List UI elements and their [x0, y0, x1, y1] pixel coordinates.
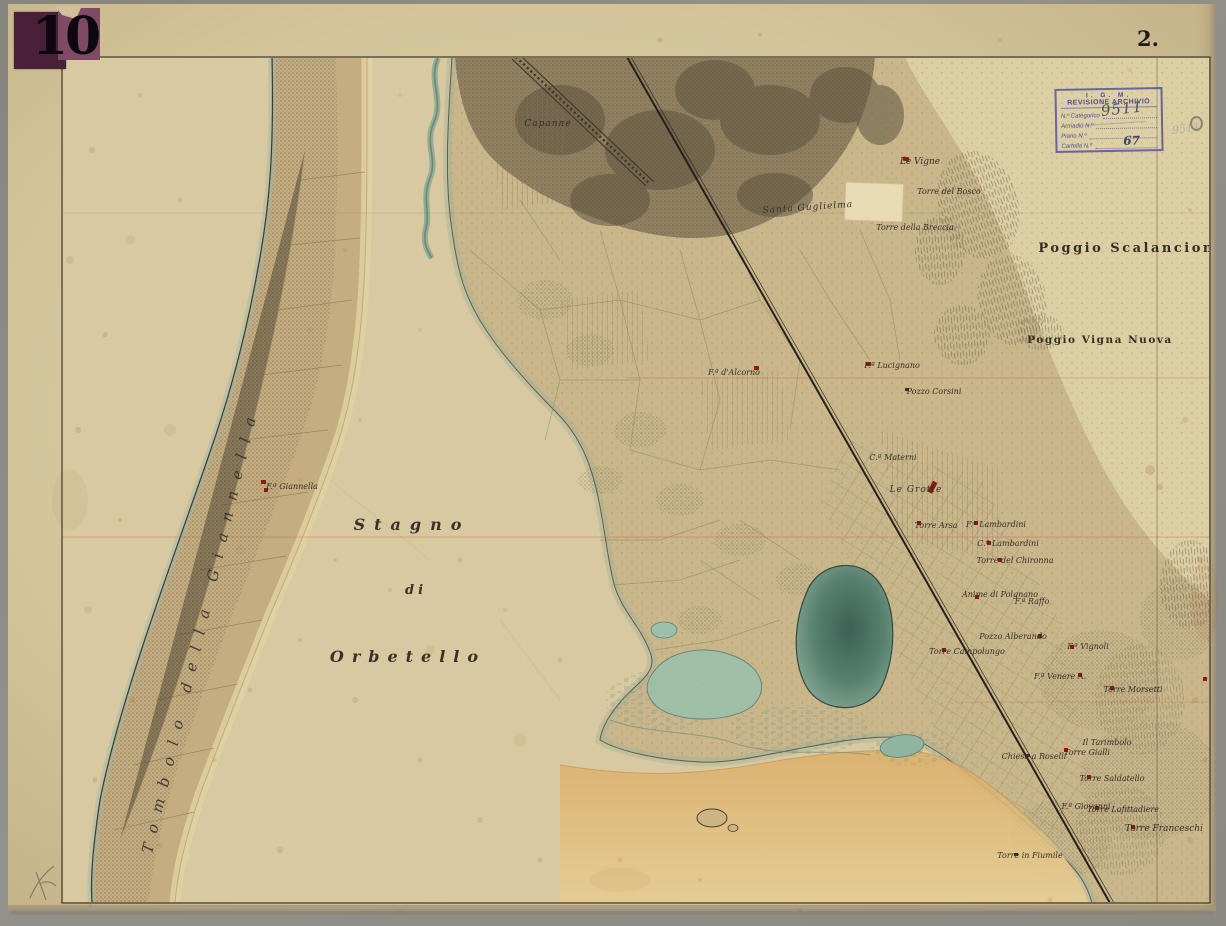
place-label: Il Tarimbolo [1081, 738, 1131, 747]
archive-stamp: I. G. M. REVISIONE ARCHIVIO N.º Categori… [1054, 87, 1163, 153]
stamp-field: Piano N.º [1061, 128, 1157, 140]
lagoon-label-line3: Orbetello [330, 647, 486, 666]
place-label: Torre Lafittadiere [1087, 805, 1159, 814]
scanned-map-sheet: Capanne Santa Guglielma Le Vigne Torre d… [0, 0, 1226, 926]
place-label: F.ª Giannella [265, 482, 318, 491]
lagoon-label-line1: Stagno [354, 515, 471, 534]
place-label: F.ª Venere A. [1033, 672, 1086, 681]
place-label: Capanne [524, 119, 571, 129]
place-label: Torre Morsetti [1103, 685, 1163, 694]
place-label: Chiesa a Roselli [1002, 752, 1067, 761]
place-label: Torre Campolungo [929, 647, 1005, 656]
place-label: Torre in Fiumile [997, 851, 1063, 860]
sheet-number-badge: 10 [10, 4, 122, 80]
place-label: C.ª Materni [869, 453, 917, 462]
place-label: F.ª Lambardini [965, 520, 1026, 529]
paper-stack-edge [8, 905, 1216, 911]
place-label: Pozzo Corsini [906, 387, 962, 396]
place-label: Poggio Vigna Nuova [1027, 334, 1172, 346]
place-label: F.ª Lucignano [863, 361, 920, 370]
place-label: Torre Franceschi [1125, 824, 1203, 834]
place-label: Torre Saldatello [1079, 774, 1144, 783]
place-label: Torre Arsa [915, 521, 958, 530]
lagoon-label-line2: di [405, 583, 427, 598]
place-label: Le Grotte [889, 485, 943, 495]
place-label: F.ª Raffo [1014, 597, 1050, 606]
stamp-field: Cartella N.º [1061, 138, 1157, 150]
place-label: Torre del Bosco [917, 187, 981, 196]
stamp-handwritten-cartella: 67 [1123, 133, 1140, 147]
place-label: Poggio Scalancione [1038, 241, 1225, 256]
place-label: Torre Gialli [1064, 748, 1110, 757]
place-label: F.ª Vignoli [1066, 642, 1109, 651]
page-number: 2. [1128, 26, 1168, 51]
place-label: Torre del Chironna [977, 556, 1054, 565]
place-label: Torre della Breccia [876, 223, 954, 232]
place-label: Pozzo Alberando [978, 632, 1047, 641]
place-label: C.ª Lambardini [977, 539, 1039, 548]
punch-ring-mark [1190, 116, 1203, 131]
map-content: Capanne Santa Guglielma Le Vigne Torre d… [63, 55, 1226, 903]
place-label: F.ª d'Alcorno [707, 368, 760, 377]
islet [697, 809, 727, 827]
map-canvas: Capanne Santa Guglielma Le Vigne Torre d… [0, 0, 1226, 926]
place-label: Le Vigne [899, 157, 940, 167]
sheet-number: 10 [20, 4, 110, 70]
lake [796, 565, 893, 707]
paper-repair-patch [844, 182, 903, 222]
